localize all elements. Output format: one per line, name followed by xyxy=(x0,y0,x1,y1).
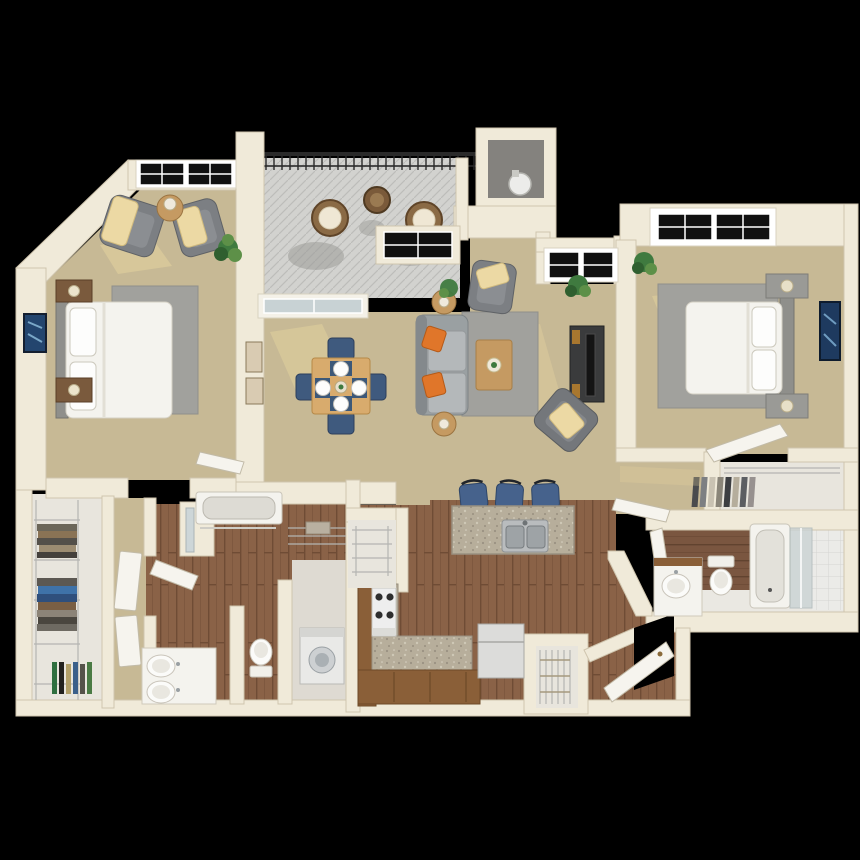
folded-linens xyxy=(306,522,330,534)
table-plant xyxy=(491,362,497,368)
pillow xyxy=(70,308,96,356)
door-handle xyxy=(658,652,663,657)
kitchen-island xyxy=(452,506,574,554)
sofa xyxy=(416,315,468,415)
burner xyxy=(375,611,382,618)
lamp xyxy=(439,419,449,429)
washer-drum xyxy=(315,653,329,667)
coffee-table xyxy=(476,340,512,390)
bar-stool xyxy=(531,480,559,510)
sofa-back xyxy=(416,315,427,415)
burner xyxy=(386,593,393,600)
side-table xyxy=(432,412,456,436)
patio-table xyxy=(364,187,390,213)
wall-pantry1-right xyxy=(396,508,408,592)
faucet xyxy=(674,570,678,574)
burner xyxy=(386,611,393,618)
console-shelf xyxy=(572,330,580,344)
side-table xyxy=(157,195,183,221)
vanity-cabinet xyxy=(654,558,702,566)
shower-tile-wall xyxy=(812,528,844,610)
floor-plan xyxy=(0,0,860,860)
storage-closet xyxy=(476,128,556,208)
wall-bedroom2-bottom-left xyxy=(616,448,706,462)
wall-hall-bath-a xyxy=(144,498,156,556)
centerpiece-plant xyxy=(339,385,344,390)
plate xyxy=(334,397,349,412)
control-panel xyxy=(300,628,344,637)
wall-closet1-right xyxy=(102,496,114,708)
shower-glass xyxy=(790,528,812,608)
pantry-floor xyxy=(536,646,578,708)
lamp xyxy=(69,385,80,396)
nightstand xyxy=(766,274,808,298)
stove xyxy=(372,588,396,636)
vanity xyxy=(654,558,702,616)
wall-right xyxy=(844,204,858,632)
wall-frame xyxy=(246,378,263,404)
stove-panel xyxy=(372,628,396,635)
wall-left xyxy=(16,268,46,490)
sink-basin xyxy=(152,659,170,673)
wall-art xyxy=(820,302,840,360)
tub-drain xyxy=(768,588,772,592)
nightstand xyxy=(56,280,92,302)
sink-basin xyxy=(506,526,524,548)
bed xyxy=(686,298,794,398)
dining-chair xyxy=(328,338,354,360)
pillow xyxy=(752,350,776,390)
sink-basin xyxy=(152,685,170,699)
wall-bedroom2-bottom-right xyxy=(788,448,858,462)
wall-pantry1-top xyxy=(346,508,400,522)
water-heater-pipe xyxy=(512,170,519,177)
floor-plan-canvas xyxy=(0,0,860,860)
faucet xyxy=(176,662,180,666)
plate xyxy=(352,381,367,396)
sink-basin xyxy=(527,526,545,548)
lamp xyxy=(439,297,449,307)
toilet-tank xyxy=(250,666,272,677)
washer-dryer xyxy=(300,628,344,684)
tv-console xyxy=(570,326,604,402)
folded-clothes-stack xyxy=(37,578,77,631)
toilet-tank xyxy=(708,556,734,567)
toilet xyxy=(250,639,272,677)
nightstand xyxy=(56,378,92,402)
wall-left-lower xyxy=(16,490,32,716)
counter-top xyxy=(372,636,472,674)
bathtub xyxy=(196,492,282,524)
wall-bedroom2-left xyxy=(616,240,636,458)
patio-chair xyxy=(312,200,348,236)
refrigerator xyxy=(478,624,524,678)
faucet xyxy=(523,521,528,526)
double-vanity xyxy=(142,648,216,704)
pillow xyxy=(752,307,776,347)
nightstand xyxy=(766,394,808,418)
tv-screen xyxy=(586,334,595,396)
burner xyxy=(375,593,382,600)
wall-bedroom1-bottom-a xyxy=(46,478,128,498)
plate xyxy=(316,381,331,396)
dining-chair xyxy=(328,412,354,434)
lamp xyxy=(69,286,80,297)
entry-pantry xyxy=(536,646,578,708)
wall-toilet-compartment-left xyxy=(230,606,244,704)
plate xyxy=(334,362,349,377)
toilet-seat xyxy=(254,642,268,658)
lamp xyxy=(164,198,176,210)
tub-basin xyxy=(203,497,275,519)
balcony xyxy=(262,152,480,298)
kitchen-pantry xyxy=(348,520,396,588)
wall-art xyxy=(24,314,46,352)
mirror-door-panel xyxy=(115,615,141,667)
lamp xyxy=(781,400,793,412)
lamp xyxy=(781,280,793,292)
chair-shadow xyxy=(288,242,344,270)
wall-frame xyxy=(246,342,262,372)
cabinet-run xyxy=(358,670,480,704)
bathtub xyxy=(750,524,790,608)
wall-toilet-compartment-right xyxy=(278,580,292,704)
armchair xyxy=(467,258,518,315)
mirror xyxy=(186,508,194,552)
toilet-seat xyxy=(714,572,728,589)
folded-clothes-stack xyxy=(37,524,77,558)
sink-basin xyxy=(667,579,685,594)
faucet xyxy=(176,688,180,692)
toilet xyxy=(708,556,734,595)
sliding-door xyxy=(258,294,368,318)
